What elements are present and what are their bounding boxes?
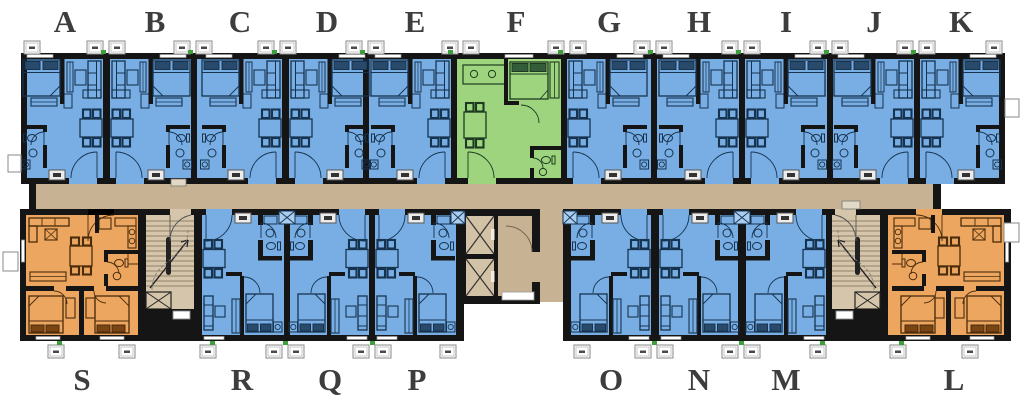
svg-text:O: O [599,362,623,397]
svg-text:A: A [54,4,77,39]
svg-text:F: F [507,4,526,39]
svg-text:R: R [231,362,254,397]
svg-text:C: C [229,4,251,39]
svg-text:L: L [944,362,965,397]
svg-text:I: I [780,4,792,39]
svg-text:G: G [597,4,621,39]
svg-text:B: B [145,4,166,39]
svg-text:H: H [687,4,711,39]
svg-text:J: J [866,4,882,39]
svg-text:M: M [771,362,800,397]
svg-text:K: K [949,4,973,39]
svg-text:P: P [408,362,427,397]
svg-text:D: D [316,4,338,39]
svg-text:E: E [405,4,426,39]
svg-text:S: S [73,362,90,397]
svg-text:Q: Q [318,362,342,397]
svg-text:N: N [688,362,710,397]
